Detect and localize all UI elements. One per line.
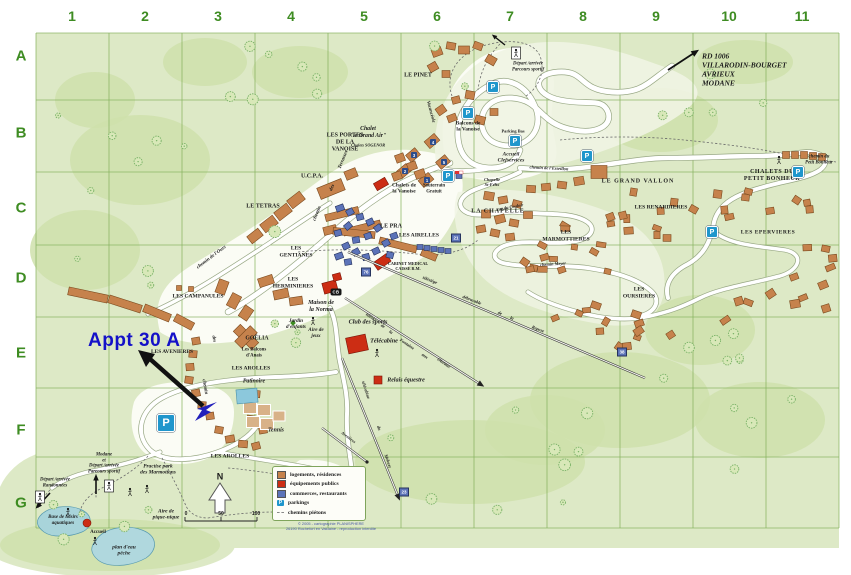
grid-column-4: 4 xyxy=(287,8,295,24)
legend-label: commerces, restaurants xyxy=(290,491,347,497)
grid-row-E: E xyxy=(16,345,26,362)
grid-column-9: 9 xyxy=(652,8,660,24)
apartment-annotation: Appt 30 A xyxy=(88,330,180,352)
numbered-marker: 76 xyxy=(361,268,371,277)
map-label: du xyxy=(376,425,382,431)
map-label: LE TETRAS xyxy=(246,203,279,210)
legend-item-residences: logements, résidences xyxy=(277,470,361,480)
grid-column-7: 7 xyxy=(506,8,514,24)
credit-line-2: 26190 Rochefort en Valdaine - reproducti… xyxy=(276,526,386,531)
grid-column-5: 5 xyxy=(360,8,368,24)
map-label: 0 xyxy=(185,512,188,518)
map-label: des xyxy=(210,335,217,343)
map-label: Aire de pique-nique xyxy=(153,509,180,522)
numbered-marker: 5 xyxy=(441,159,447,165)
atm-cb-icon: CB xyxy=(331,289,342,296)
map-label: Chapelle St-Félix xyxy=(484,177,500,187)
map-label: chemin du Petit Bonheur xyxy=(805,154,833,165)
map-label: LES AROLLES xyxy=(232,366,270,373)
legend-item-commerces: commerces, restaurants xyxy=(277,489,361,499)
grid-row-G: G xyxy=(15,495,27,512)
map-label: LE PINET xyxy=(404,72,432,79)
grid-row-C: C xyxy=(16,200,27,217)
grid-column-6: 6 xyxy=(433,8,441,24)
map-label: Maison de la Norma xyxy=(308,300,334,314)
legend-item-path: chemins piétons xyxy=(277,508,361,518)
map-label: 50 xyxy=(218,512,224,518)
map-label: LES RENARDIERES xyxy=(635,205,688,212)
map-label: CABINET MEDICAL CAISSE R.M. xyxy=(388,262,428,272)
map-label: Jardin d'enfants xyxy=(286,318,306,330)
grid-column-3: 3 xyxy=(214,8,222,24)
map-label: LES OURSIERES xyxy=(623,286,655,299)
map-label: LES EPERVIERES xyxy=(741,230,796,237)
map-label: LE PRA xyxy=(380,223,402,230)
parking-icon: P xyxy=(157,414,175,432)
numbered-marker: 4 xyxy=(430,139,436,145)
numbered-marker: 38 xyxy=(617,348,627,357)
map-label: Balcons de la Vanoise xyxy=(456,121,481,134)
legend-swatch-path xyxy=(277,512,284,513)
parking-icon: P xyxy=(581,150,593,162)
map-label: LE GRAND VALLON xyxy=(602,178,675,185)
numbered-marker: 1 xyxy=(424,177,430,183)
legend-item-public: équipements publics xyxy=(277,480,361,490)
map-label: LES MARMOTTIERES xyxy=(542,229,589,242)
parking-icon: P xyxy=(792,166,804,178)
map-label: Tennis xyxy=(268,428,284,435)
map-label: Accueil Clefservices xyxy=(498,152,525,165)
map-label: 100 xyxy=(252,512,260,518)
legend-swatch-residences xyxy=(277,471,286,479)
map-label: Base de loisirs aquatiques xyxy=(48,515,78,527)
grid-row-A: A xyxy=(16,48,27,65)
numbered-marker: 2 xyxy=(402,168,408,174)
resort-map: 1234567891011ABCDEFG LE PINETLES PORTES … xyxy=(0,0,851,575)
accueil-dot xyxy=(83,519,91,527)
map-label: LES AROLLES xyxy=(211,454,249,461)
map-label: Patinoire xyxy=(243,379,265,386)
legend: logements, résidenceséquipements publics… xyxy=(272,466,366,521)
map-label: GOËLIA xyxy=(245,336,268,343)
grid-column-1: 1 xyxy=(68,8,76,24)
map-label: RD 1006 VILLARODIN-BOURGET AVRIEUX MODAN… xyxy=(702,52,787,87)
numbered-marker: 3 xyxy=(411,152,417,158)
parking-icon: P xyxy=(442,170,454,182)
legend-label: équipements publics xyxy=(290,481,339,487)
map-label: Télécabine xyxy=(370,337,398,344)
map-label: LES CAMPANULES xyxy=(172,294,223,301)
grid-row-B: B xyxy=(16,125,27,142)
parking-icon: P xyxy=(462,107,474,119)
map-label: Départ /arrivée Randonnées xyxy=(40,477,70,488)
legend-swatch-commerces xyxy=(277,490,286,498)
map-label: LES HERMINIERES xyxy=(273,276,313,289)
legend-swatch-public xyxy=(277,480,286,488)
map-label: N xyxy=(217,472,224,483)
map-label: LES GENTIANES xyxy=(280,245,313,258)
map-label: Aire de jeux xyxy=(308,327,323,339)
map-label: Départ /arrivée Parcours sportif xyxy=(512,61,544,72)
parking-icon: P xyxy=(487,81,499,93)
map-label: plan d'eau pêche xyxy=(112,545,136,558)
map-label: Parking Bas xyxy=(501,128,524,133)
map-credit: © 2005 - cartographie PLANISPHERE 26190 … xyxy=(276,521,386,531)
legend-label: logements, résidences xyxy=(290,472,341,478)
legend-label: parkings xyxy=(288,500,309,506)
grid-column-2: 2 xyxy=(141,8,149,24)
numbered-marker: 23 xyxy=(399,488,409,497)
legend-swatch-parking: P xyxy=(277,500,284,506)
map-label: Modane et Départ /arrivée Parcours sport… xyxy=(88,453,120,476)
parking-icon: P xyxy=(706,226,718,238)
grid-row-D: D xyxy=(16,270,27,287)
map-label: Relais équestre xyxy=(387,377,425,384)
legend-label: chemins piétons xyxy=(288,510,326,516)
grid-column-8: 8 xyxy=(579,8,587,24)
parking-icon: P xyxy=(509,135,521,147)
map-label: U.C.P.A. xyxy=(301,173,323,180)
map-label: Chalet "le Grand Air" xyxy=(350,126,387,140)
map-label: Chalets SOGENOR xyxy=(351,144,385,149)
map-label: Accueil xyxy=(90,530,106,536)
map-label: Souterrain Gratuit xyxy=(423,183,445,194)
grid-column-11: 11 xyxy=(795,8,810,24)
map-label: Chalets de la Vanoise xyxy=(392,183,416,196)
map-label: LES AIRELLES xyxy=(399,233,439,240)
legend-item-parking: Pparkings xyxy=(277,499,361,509)
map-label: Practise park des Marmottons xyxy=(140,464,176,477)
grid-row-F: F xyxy=(16,422,25,439)
map-label: Les Balcons d'Anais xyxy=(242,347,266,358)
grid-column-10: 10 xyxy=(721,8,737,24)
numbered-marker: 21 xyxy=(451,234,461,243)
